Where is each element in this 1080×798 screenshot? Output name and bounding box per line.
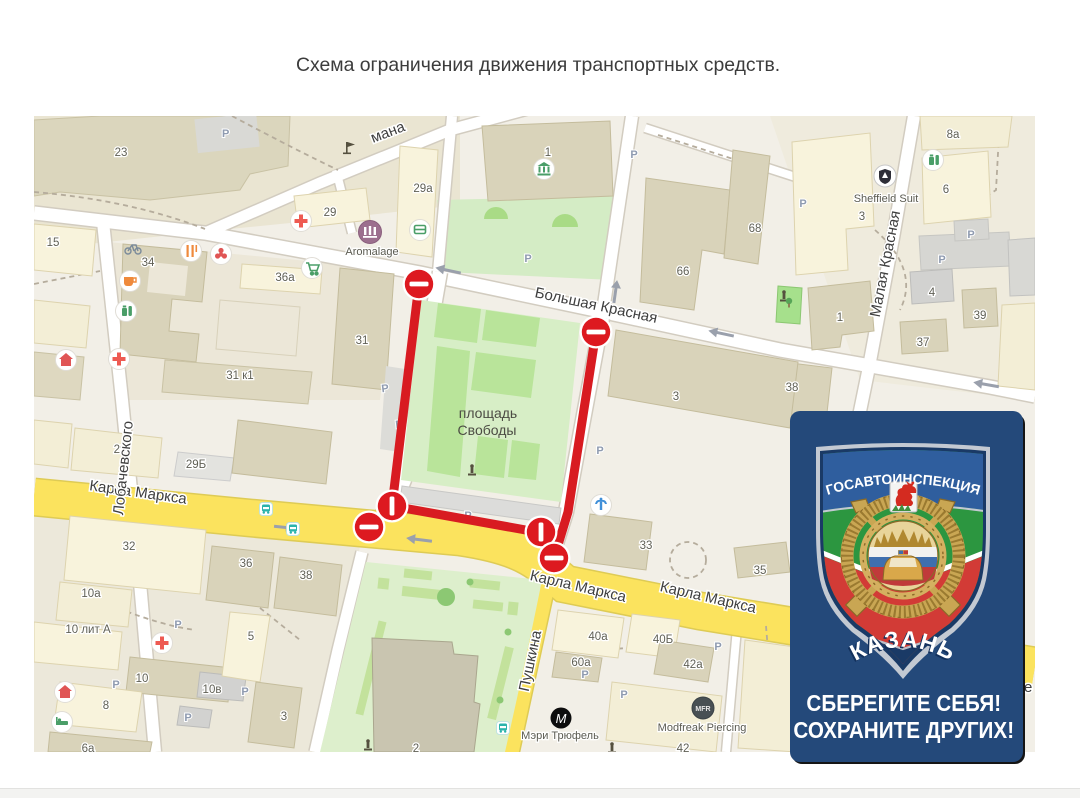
svg-text:10: 10: [136, 673, 149, 685]
svg-text:MFR: MFR: [695, 706, 710, 713]
svg-text:3: 3: [673, 391, 679, 403]
svg-text:8: 8: [103, 700, 109, 712]
svg-text:10 лит А: 10 лит А: [65, 624, 111, 636]
svg-text:32: 32: [123, 541, 136, 553]
svg-text:68: 68: [749, 223, 762, 235]
svg-text:42а: 42а: [683, 659, 703, 671]
svg-text:4: 4: [929, 287, 936, 299]
svg-text:P: P: [524, 253, 531, 265]
svg-text:5: 5: [248, 631, 254, 643]
svg-text:23: 23: [115, 147, 128, 159]
svg-text:10а: 10а: [81, 588, 101, 600]
svg-text:40Б: 40Б: [653, 634, 673, 646]
svg-text:P: P: [620, 689, 627, 701]
svg-text:P: P: [581, 669, 588, 681]
svg-text:8а: 8а: [947, 129, 960, 141]
svg-text:10в: 10в: [203, 684, 222, 696]
svg-text:Aromalage: Aromalage: [345, 246, 398, 258]
svg-text:37: 37: [917, 337, 930, 349]
svg-text:29: 29: [324, 207, 337, 219]
svg-text:P: P: [381, 383, 390, 396]
svg-text:P: P: [184, 712, 191, 724]
svg-text:P: P: [938, 254, 945, 266]
svg-text:P: P: [630, 149, 637, 161]
svg-text:38: 38: [786, 382, 799, 394]
svg-text:1: 1: [837, 312, 843, 324]
svg-text:39: 39: [974, 310, 987, 322]
svg-text:36: 36: [240, 558, 253, 570]
svg-text:Свободы: Свободы: [458, 422, 517, 438]
svg-text:площадь: площадь: [459, 405, 517, 421]
svg-text:34: 34: [142, 257, 155, 269]
svg-text:P: P: [799, 198, 806, 210]
svg-text:31 к1: 31 к1: [226, 370, 253, 382]
svg-text:P: P: [714, 641, 721, 653]
svg-text:Схема ограничения движения тра: Схема ограничения движения транспортных …: [296, 54, 780, 76]
svg-text:35: 35: [754, 565, 767, 577]
svg-text:60а: 60а: [571, 657, 591, 669]
svg-text:33: 33: [640, 540, 653, 552]
svg-text:6: 6: [943, 184, 949, 196]
svg-text:P: P: [174, 619, 181, 631]
svg-text:СОХРАНИТЕ ДРУГИХ!: СОХРАНИТЕ ДРУГИХ!: [793, 717, 1014, 744]
svg-text:29Б: 29Б: [186, 459, 206, 471]
svg-text:38: 38: [300, 570, 313, 582]
svg-text:СБЕРЕГИТЕ СЕБЯ!: СБЕРЕГИТЕ СЕБЯ!: [806, 690, 1001, 717]
svg-text:P: P: [222, 128, 229, 140]
svg-text:P: P: [596, 445, 603, 457]
svg-text:1: 1: [545, 147, 551, 159]
svg-text:40а: 40а: [588, 631, 608, 643]
svg-text:M: M: [556, 711, 567, 726]
svg-text:Sheffield Suit: Sheffield Suit: [854, 193, 919, 205]
svg-text:36а: 36а: [275, 272, 295, 284]
svg-text:66: 66: [677, 266, 690, 278]
svg-text:3: 3: [281, 711, 287, 723]
svg-text:31: 31: [356, 335, 369, 347]
svg-text:Modfreak Piercing: Modfreak Piercing: [658, 722, 747, 734]
svg-text:P: P: [241, 686, 248, 698]
svg-text:Мэри Трюфель: Мэри Трюфель: [521, 730, 599, 742]
svg-text:15: 15: [47, 237, 60, 249]
svg-text:P: P: [112, 679, 119, 691]
svg-text:3: 3: [859, 211, 865, 223]
svg-text:е: е: [1024, 679, 1032, 696]
svg-text:29а: 29а: [413, 183, 433, 195]
svg-text:P: P: [967, 229, 974, 241]
